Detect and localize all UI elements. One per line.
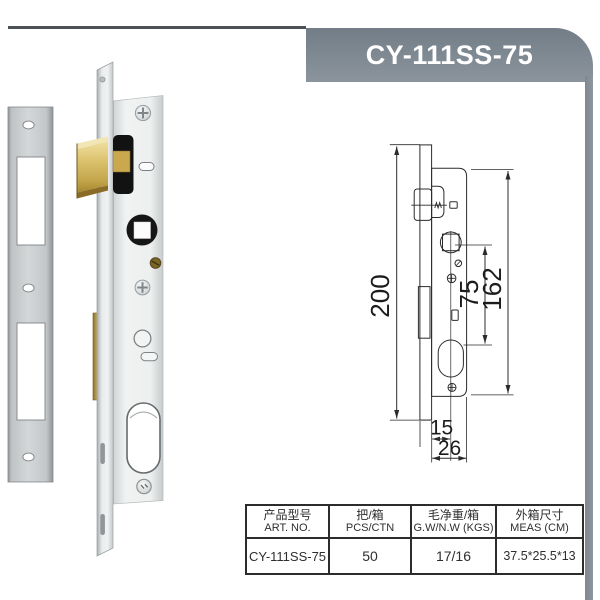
header-pcs-ctn: 把/箱 PCS/CTN <box>329 505 411 538</box>
latch-inner-brass <box>113 151 130 172</box>
spindle-hole <box>127 215 158 246</box>
faceplate-slot <box>100 443 105 464</box>
flat-screw <box>150 258 161 269</box>
technical-drawing: 200 75 162 15 26 <box>370 125 520 470</box>
drawing-latch <box>414 189 431 220</box>
latch-opening <box>113 135 134 194</box>
philips-screw <box>135 280 150 295</box>
catalog-page: CY-111SS-75 <box>0 0 600 600</box>
strike-plate-bolt-cutout <box>17 323 45 420</box>
philips-screw <box>135 105 150 120</box>
header-art-no: 产品型号 ART. NO. <box>246 505 329 538</box>
strike-plate <box>8 107 53 482</box>
strike-plate-screw-hole <box>23 453 34 461</box>
case-slot <box>141 353 158 361</box>
top-rule <box>8 26 306 29</box>
title-banner: CY-111SS-75 <box>306 28 593 82</box>
drawing-faceplate <box>420 145 432 420</box>
product-photo <box>0 55 180 560</box>
strike-plate-latch-cutout <box>17 157 45 245</box>
strike-plate-screw-hole <box>23 284 34 292</box>
dim-200 <box>390 145 432 420</box>
spec-table: 产品型号 ART. NO. 把/箱 PCS/CTN 毛净重/箱 G.W/N.W … <box>245 504 584 575</box>
cell-art-no: CY-111SS-75 <box>246 538 329 574</box>
spec-table-header-row: 产品型号 ART. NO. 把/箱 PCS/CTN 毛净重/箱 G.W/N.W … <box>246 505 583 538</box>
cylinder-screw-hole <box>134 330 151 347</box>
header-gw-nw: 毛净重/箱 G.W/N.W (KGS) <box>411 505 496 538</box>
latch-bolt <box>77 137 108 199</box>
right-side-bar <box>585 76 593 600</box>
cell-gw-nw: 17/16 <box>411 538 496 574</box>
strike-plate-screw-hole <box>23 121 34 129</box>
dim-200-label: 200 <box>370 274 395 317</box>
cell-meas: 37.5*25.5*13 <box>496 538 583 574</box>
case-slot <box>139 163 154 171</box>
cylinder-hole <box>127 403 160 473</box>
stamped-screw <box>137 479 151 493</box>
dim-26-label: 26 <box>438 437 461 460</box>
product-model-title: CY-111SS-75 <box>306 28 593 82</box>
lock-faceplate <box>97 62 113 556</box>
drawing-slot <box>450 202 457 208</box>
spec-table-data-row: CY-111SS-75 50 17/16 37.5*25.5*13 <box>246 538 583 574</box>
faceplate-hole <box>100 77 105 82</box>
drawing-slot <box>452 310 458 320</box>
faceplate-slot <box>100 514 105 535</box>
cell-pcs-ctn: 50 <box>329 538 411 574</box>
dim-162-label: 162 <box>477 267 507 310</box>
header-meas: 外箱尺寸 MEAS (CM) <box>496 505 583 538</box>
drawing-latch-bracket <box>432 186 444 217</box>
